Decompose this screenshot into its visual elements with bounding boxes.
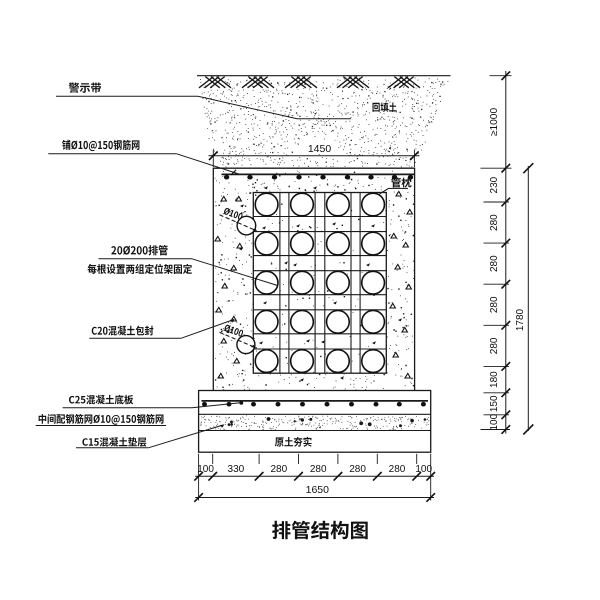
svg-text:280: 280	[270, 464, 287, 475]
svg-text:280: 280	[489, 255, 500, 272]
svg-text:100: 100	[415, 464, 432, 475]
svg-text:280: 280	[310, 464, 327, 475]
svg-text:≥1000: ≥1000	[489, 108, 500, 137]
svg-text:280: 280	[489, 296, 500, 313]
svg-text:280: 280	[349, 464, 366, 475]
svg-text:280: 280	[389, 464, 406, 475]
svg-text:1450: 1450	[308, 143, 332, 155]
svg-text:100: 100	[489, 413, 500, 430]
svg-text:1650: 1650	[306, 484, 330, 496]
svg-text:330: 330	[228, 464, 245, 475]
svg-text:1780: 1780	[515, 308, 526, 331]
svg-text:150: 150	[489, 395, 500, 412]
svg-text:230: 230	[489, 176, 500, 193]
svg-text:100: 100	[197, 464, 214, 475]
svg-text:280: 280	[489, 337, 500, 354]
svg-text:280: 280	[489, 214, 500, 231]
svg-text:180: 180	[489, 371, 500, 388]
